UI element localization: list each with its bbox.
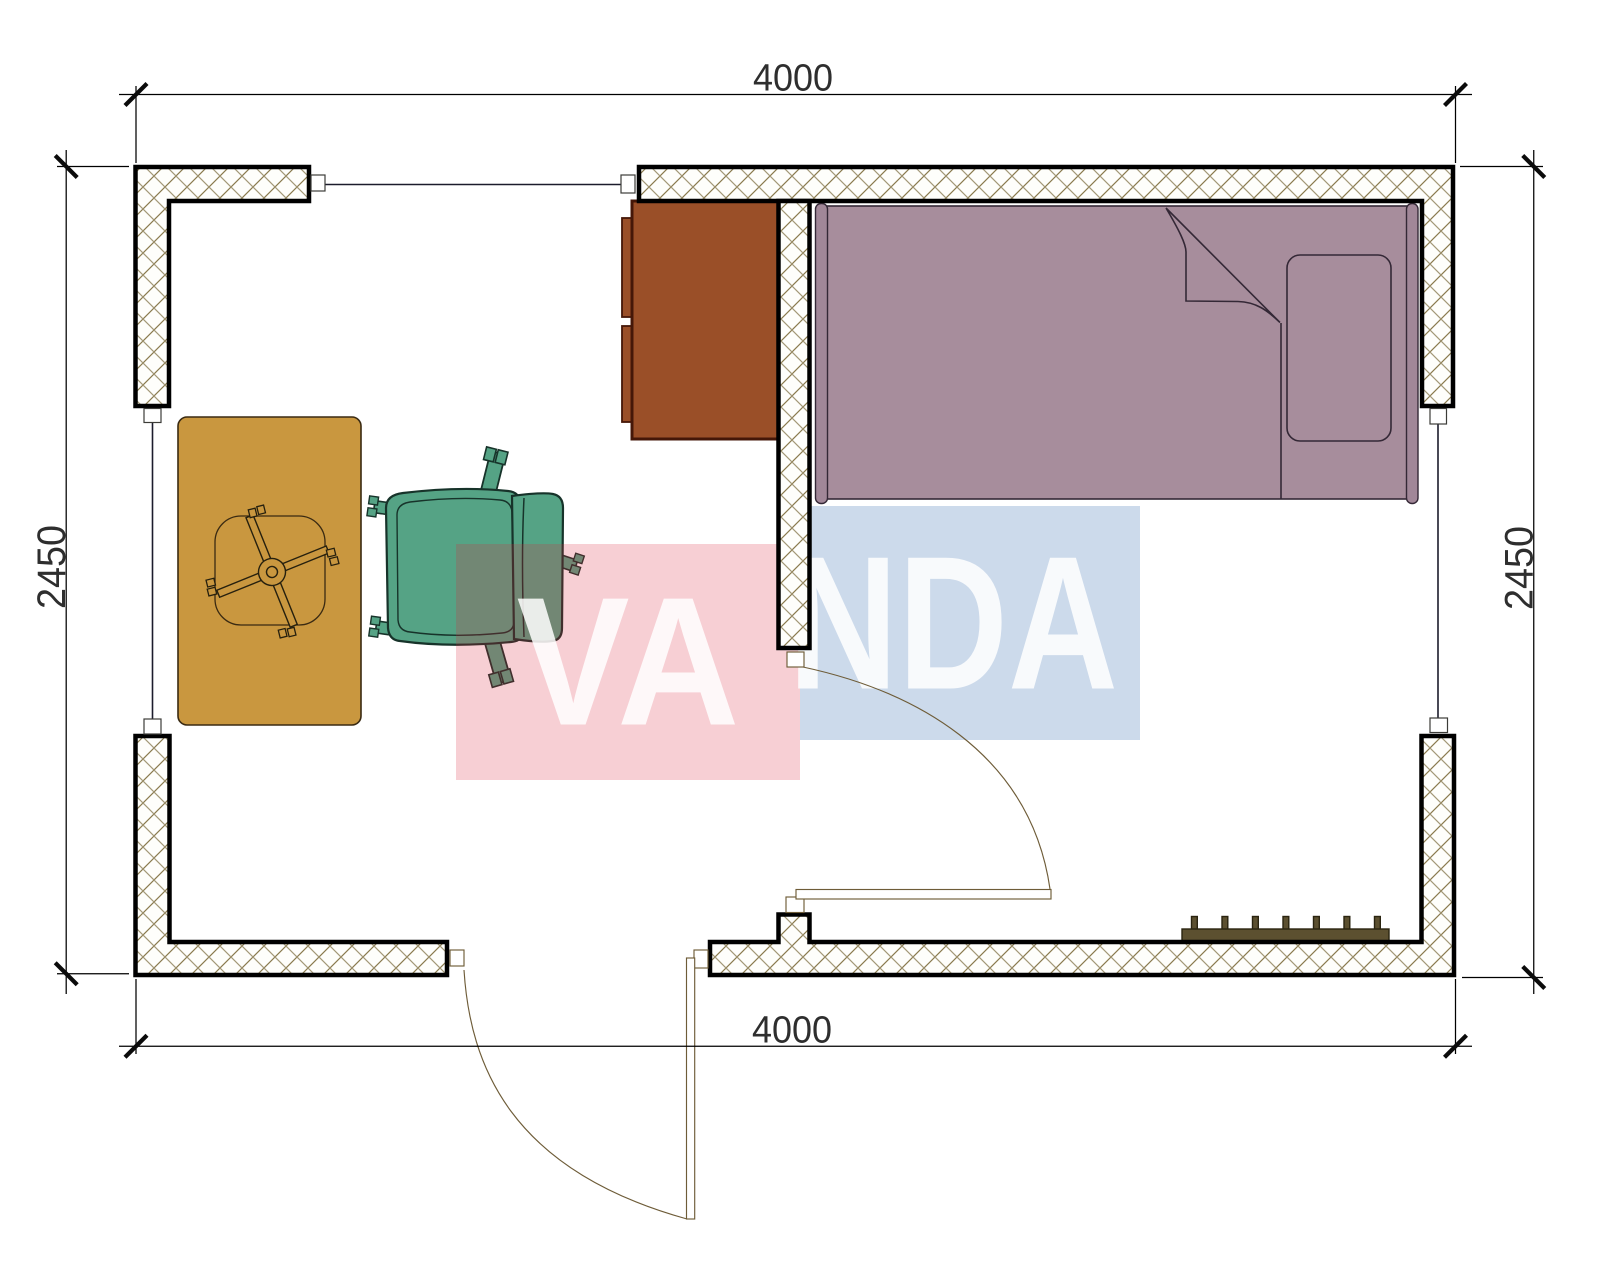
svg-text:2450: 2450 <box>30 525 74 609</box>
svg-text:4000: 4000 <box>753 58 833 100</box>
svg-text:NDA: NDA <box>788 518 1118 730</box>
svg-text:VA: VA <box>517 559 740 764</box>
svg-text:4000: 4000 <box>752 1010 832 1052</box>
svg-text:2450: 2450 <box>1498 526 1542 610</box>
